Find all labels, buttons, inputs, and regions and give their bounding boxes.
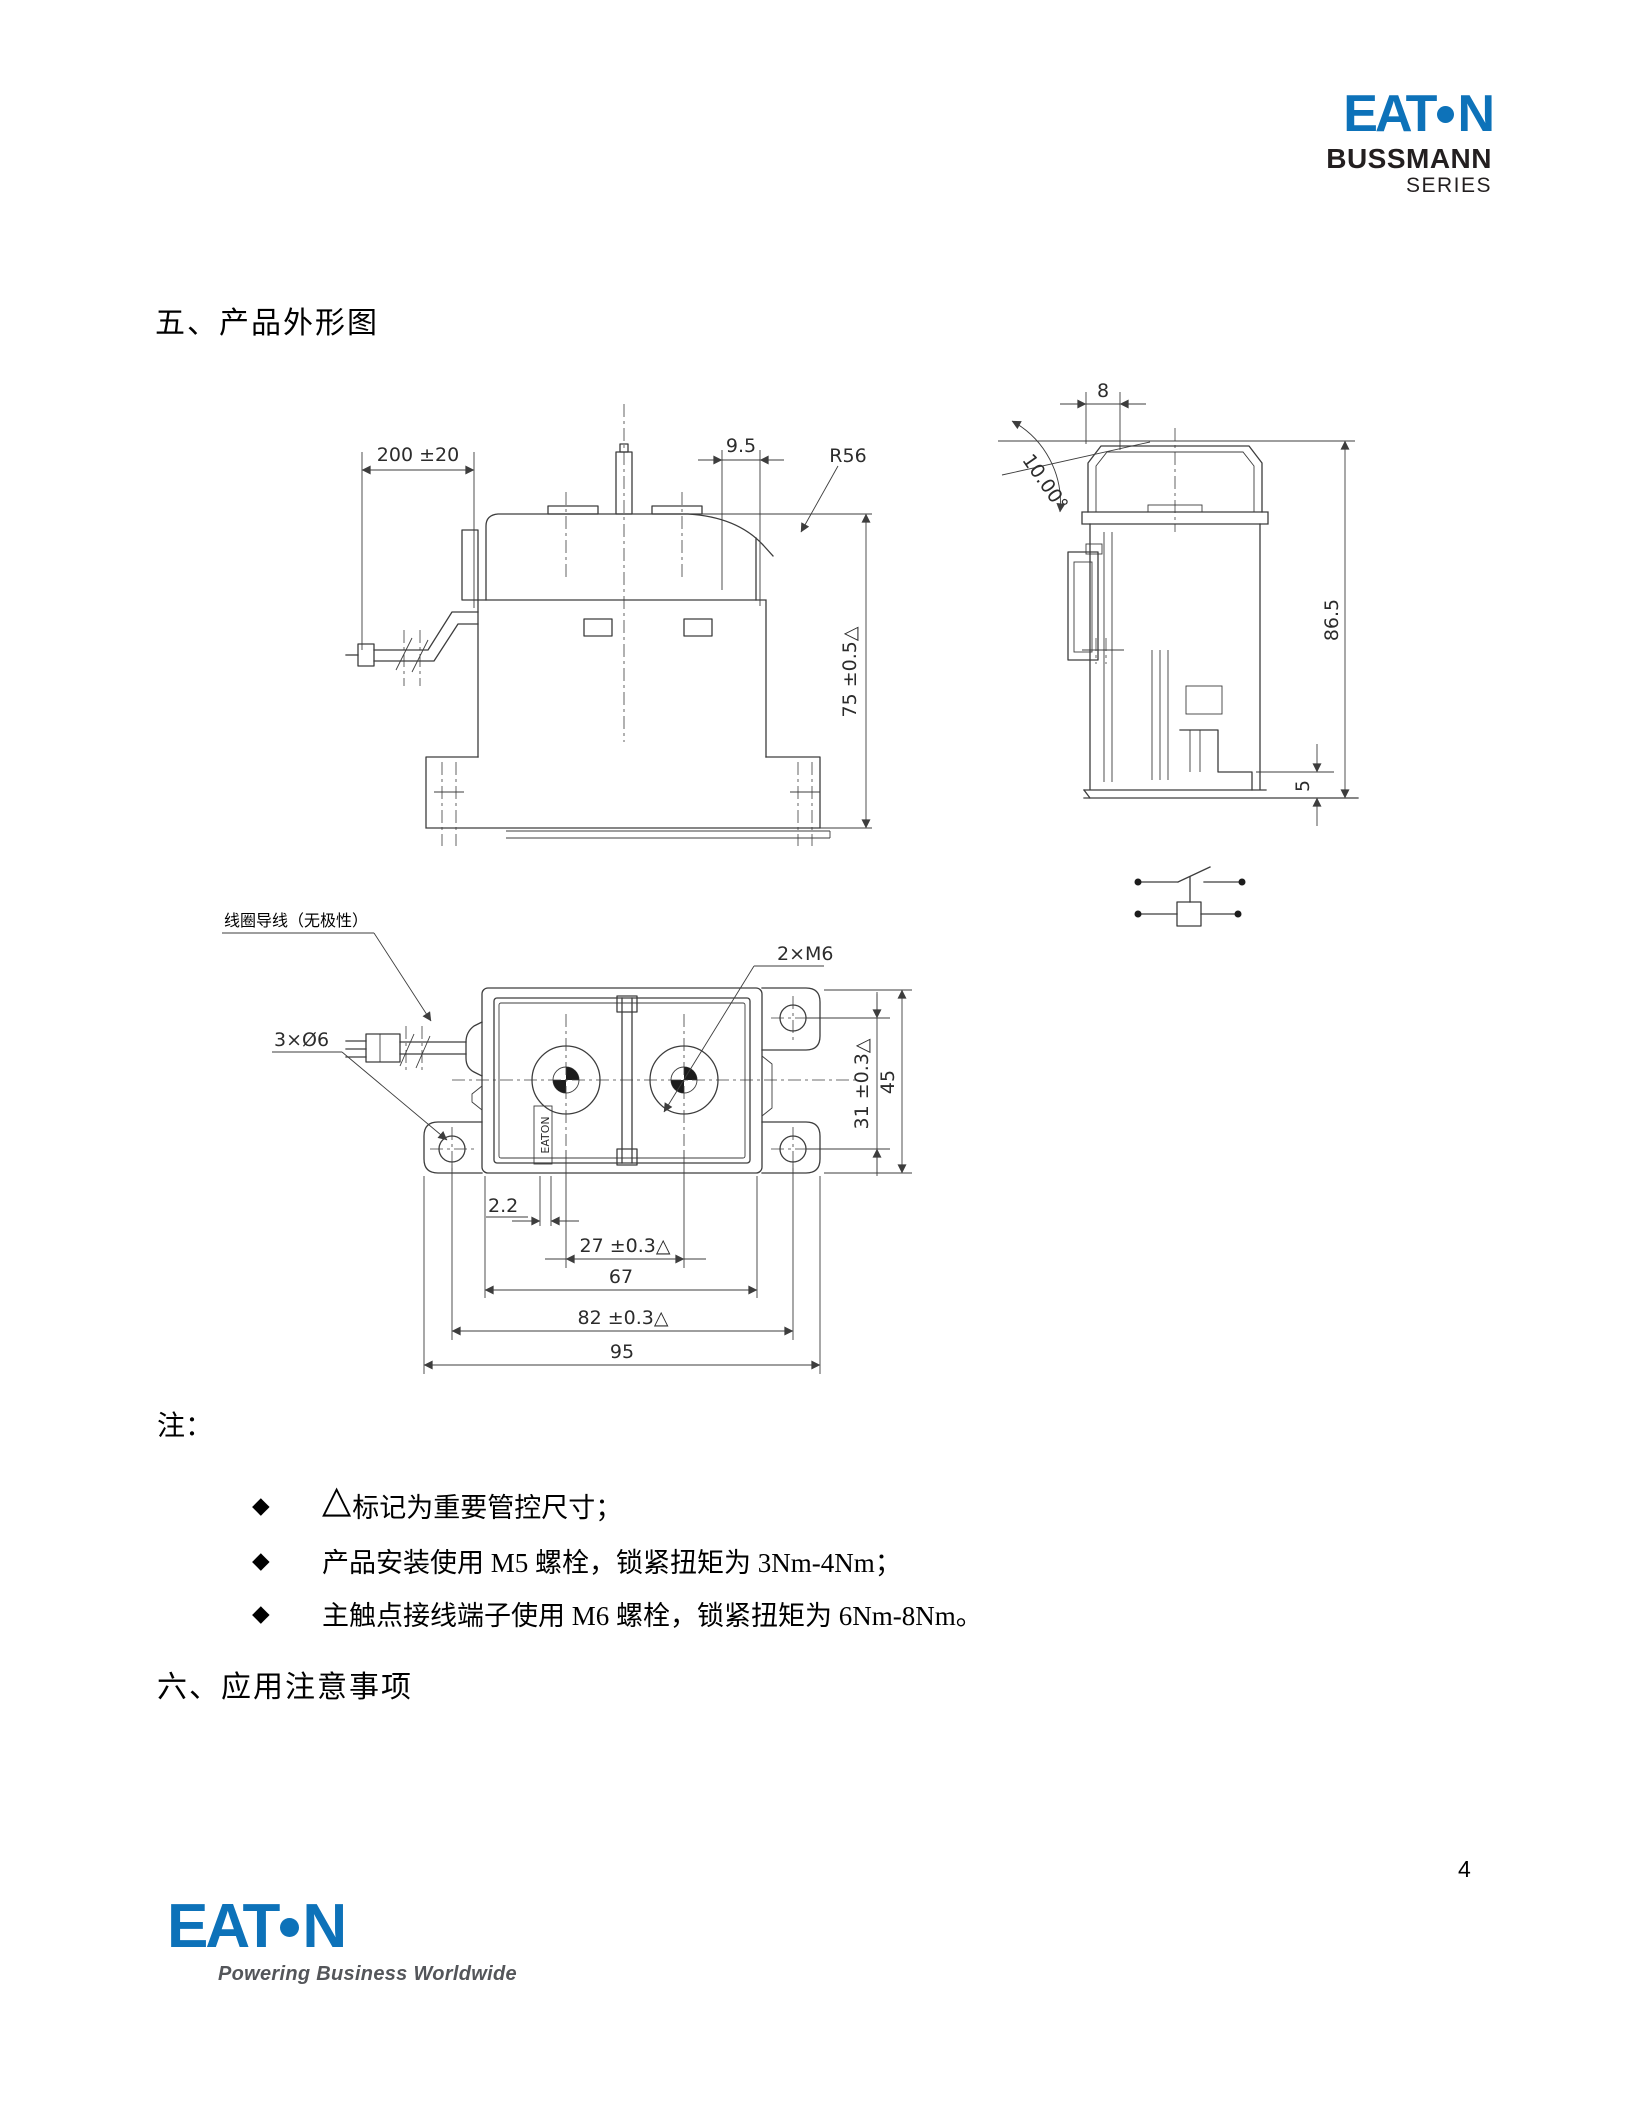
dim-terminal-pitch: 27 ±0.3△ [580, 1235, 671, 1257]
note-text: 产品安装使用 M5 螺栓，锁紧扭矩为 3Nm-4Nm； [322, 1541, 902, 1580]
eaton-o-icon [280, 1918, 299, 1937]
note-text: 主触点接线端子使用 M6 螺栓，锁紧扭矩为 6Nm-8Nm。 [322, 1594, 983, 1633]
dim-top-width: 8 [1097, 380, 1109, 402]
relay-symbol-icon [1135, 867, 1246, 926]
thread-label: 2×M6 [777, 943, 834, 965]
footer-tagline: Powering Business Worldwide [218, 1963, 517, 1986]
lead-dia-label: 3×Ø6 [274, 1029, 329, 1051]
top-view: EATON 线圈导线（无极性） 2×M6 3×Ø6 2.2 27 ±0.3△ [222, 912, 912, 1374]
triangle-mark-icon: △ [322, 1484, 351, 1514]
footer-brand-block: EAT N Powering Business Worldwide [167, 1896, 517, 1986]
diamond-bullet-icon: ◆ [252, 1601, 322, 1627]
note-text: 标记为重要管控尺寸； [352, 1486, 622, 1525]
note-item-3: ◆ 主触点接线端子使用 M6 螺栓，锁紧扭矩为 6Nm-8Nm。 [252, 1594, 983, 1633]
front-view: 200 ±20 9.5 R56 75 ±0.5△ [346, 404, 872, 846]
dim-vert-pitch: 31 ±0.3△ [851, 1038, 873, 1129]
body-brand-mark: EATON [539, 1116, 552, 1153]
dim-side-height: 86.5 [1321, 599, 1343, 641]
eaton-footer-logo: EAT N [167, 1896, 517, 1958]
dim-overall-width: 95 [610, 1341, 634, 1363]
eaton-logo-text-right: N [302, 1896, 344, 1958]
datasheet-page: EAT N BUSSMANN SERIES 五、产品外形图 [0, 0, 1632, 2112]
note-item-2: ◆ 产品安装使用 M5 螺栓，锁紧扭矩为 3Nm-4Nm； [252, 1541, 902, 1580]
application-section-title: 六、应用注意事项 [157, 1662, 413, 1706]
dim-radius: R56 [829, 445, 866, 467]
dim-height: 75 ±0.5△ [839, 626, 861, 717]
dim-base: 5 [1292, 780, 1314, 792]
side-view: 10.00° 8 86.5 5 [998, 380, 1358, 826]
dim-top-offset: 9.5 [726, 435, 756, 457]
dim-angle: 10.00° [1018, 450, 1073, 515]
dim-offset: 2.2 [488, 1195, 518, 1217]
coil-lead-label: 线圈导线（无极性） [224, 912, 368, 930]
dim-body-width: 67 [609, 1266, 633, 1288]
notes-label: 注： [157, 1404, 213, 1444]
eaton-logo-text-left: EAT [167, 1896, 277, 1958]
dim-wire-length: 200 ±20 [377, 444, 459, 466]
note-item-1: ◆ △ 标记为重要管控尺寸； [252, 1486, 622, 1525]
diamond-bullet-icon: ◆ [252, 1548, 322, 1574]
dim-depth: 45 [877, 1070, 899, 1094]
diamond-bullet-icon: ◆ [252, 1493, 322, 1519]
page-number: 4 [1458, 1856, 1471, 1883]
dim-mount-pitch: 82 ±0.3△ [578, 1307, 669, 1329]
outline-drawing: 200 ±20 9.5 R56 75 ±0.5△ [0, 0, 1632, 1450]
